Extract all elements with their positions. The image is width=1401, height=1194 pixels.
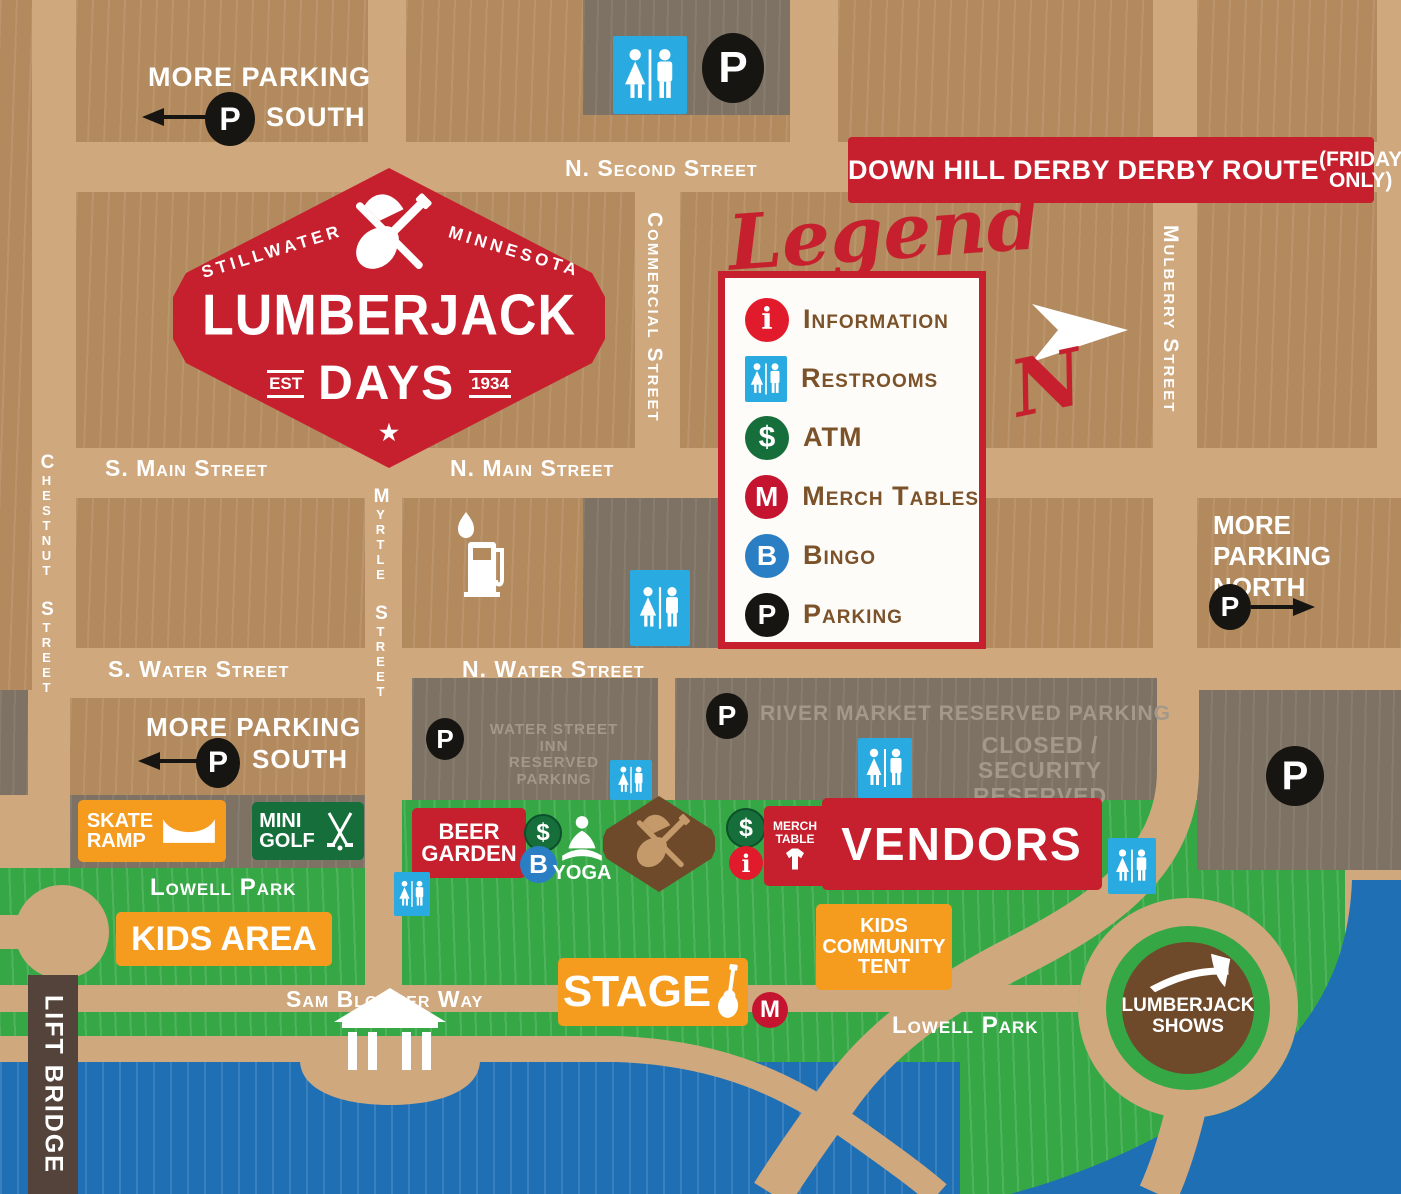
water-street-inn-line2: RESERVED PARKING — [476, 755, 632, 788]
legend-item-information: i Information — [745, 290, 979, 349]
lowell-park-label-left: Lowell Park — [150, 874, 297, 902]
badge-title: LUMBERJACK — [173, 283, 605, 349]
atm-glyph: $ — [536, 819, 549, 847]
more-parking-south-bottom-line1: MORE PARKING — [146, 712, 361, 743]
parking-glyph: P — [758, 599, 777, 631]
legend-label: Bingo — [803, 540, 876, 571]
legend-item-atm: $ ATM — [745, 408, 979, 467]
atm-glyph: $ — [759, 421, 776, 455]
more-parking-north-line2: PARKING — [1213, 541, 1331, 572]
street-label-commercial: Commercial Street — [642, 212, 666, 423]
atm-icon: $ — [726, 808, 766, 848]
restrooms-icon — [610, 760, 652, 800]
legend-label: Parking — [803, 599, 903, 630]
parking-icon: P — [426, 718, 464, 760]
bingo-glyph: B — [757, 540, 777, 572]
parking-icon: P — [702, 33, 764, 103]
tshirt-icon — [780, 846, 810, 872]
derby-route-title: DOWN HILL DERBY DERBY ROUTE — [848, 155, 1319, 186]
badge-subtitle: DAYS — [318, 356, 455, 411]
kids-tent-line3: TENT — [858, 957, 910, 977]
mini-golf-icon — [323, 811, 357, 851]
parking-glyph: P — [436, 724, 453, 755]
skate-ramp-line1: SKATE — [87, 811, 153, 831]
yoga-icon — [556, 814, 608, 866]
closed-security-line1: CLOSED / SECURITY — [925, 733, 1155, 784]
street-label-chestnut: Chestnut Street — [36, 452, 58, 695]
crossed-guitar-axe-icon — [331, 182, 447, 290]
merch-tables-icon: M — [752, 992, 788, 1028]
kids-tent-line2: COMMUNITY — [822, 937, 945, 957]
parking-glyph: P — [718, 700, 737, 732]
legend-item-restrooms: Restrooms — [745, 349, 979, 408]
kids-tent-line1: KIDS — [860, 916, 908, 936]
beer-garden-line2: GARDEN — [421, 843, 516, 865]
street-label-n-water: N. Water Street — [462, 656, 645, 683]
skate-ramp-patch: SKATE RAMP — [78, 800, 226, 862]
badge-est: EST — [267, 370, 304, 398]
restrooms-icon — [613, 36, 687, 114]
merch-glyph: M — [760, 996, 780, 1024]
vendors-patch: VENDORS — [822, 798, 1102, 890]
parking-glyph: P — [1282, 754, 1309, 799]
lumberjack-shows-line2: SHOWS — [1104, 1017, 1272, 1038]
legend-label: Merch Tables — [802, 481, 979, 512]
information-icon: i — [729, 846, 763, 880]
kids-area-label: KIDS AREA — [131, 922, 317, 957]
kids-community-tent-patch: KIDS COMMUNITY TENT — [816, 904, 952, 990]
restrooms-icon — [394, 872, 430, 916]
derby-note-line2: ONLY) — [1319, 170, 1401, 191]
street-label-n-main: N. Main Street — [450, 455, 614, 482]
more-parking-south-top-line2: SOUTH — [266, 102, 366, 133]
restrooms-icon — [1108, 838, 1156, 894]
parking-icon: P — [745, 593, 789, 637]
more-parking-south-bottom-line2: SOUTH — [252, 744, 348, 775]
stage-patch: STAGE — [558, 958, 748, 1026]
legend-label: ATM — [803, 422, 862, 453]
information-icon: i — [745, 298, 789, 342]
lift-bridge-label: LIFT BRIDGE — [39, 995, 68, 1174]
crossed-guitar-axe-icon — [620, 806, 700, 882]
legend-item-parking: P Parking — [745, 585, 979, 644]
merch-table-patch: MERCH TABLE — [764, 806, 826, 886]
parking-glyph: P — [718, 43, 747, 93]
parking-icon: P — [1266, 746, 1324, 806]
beer-garden-line1: BEER — [421, 821, 516, 843]
bingo-glyph: B — [529, 849, 548, 880]
information-glyph: i — [761, 302, 772, 337]
legend-box: i Information Restrooms $ ATM M Merch Ta… — [718, 271, 986, 649]
merch-table-line2: TABLE — [775, 833, 814, 846]
roundabout — [15, 885, 109, 979]
stage-label: STAGE — [563, 970, 711, 1015]
lumberjack-shows-label: LUMBERJACK SHOWS — [1104, 996, 1272, 1038]
vendors-label: VENDORS — [841, 821, 1082, 868]
street-label-s-water: S. Water Street — [108, 656, 289, 683]
guitar-icon — [713, 962, 747, 1021]
restrooms-icon — [745, 356, 787, 402]
information-glyph: i — [741, 849, 750, 878]
legend-item-bingo: B Bingo — [745, 526, 979, 585]
mini-golf-line1: MINI — [259, 811, 315, 831]
restrooms-icon — [858, 738, 912, 798]
merch-glyph: M — [755, 481, 778, 513]
axe-icon — [1146, 952, 1234, 994]
parking-glyph: P — [208, 746, 228, 780]
mini-golf-patch: MINI GOLF — [252, 802, 364, 860]
river-market-label: RIVER MARKET RESERVED PARKING — [760, 702, 1171, 725]
legend-item-merch: M Merch Tables — [745, 467, 979, 526]
street-label-mulberry: Mulberry Street — [1158, 225, 1182, 413]
water-street-inn-label: WATER STREET INN RESERVED PARKING — [476, 722, 632, 788]
legend-label: Restrooms — [801, 363, 938, 394]
festival-map: LIFT BRIDGE MORE PARKING P SOUTH P DOWN … — [0, 0, 1401, 1194]
skate-ramp-line2: RAMP — [87, 831, 153, 851]
atm-icon: $ — [745, 416, 789, 460]
skate-ramp-icon — [161, 816, 217, 846]
lumberjack-shows-line1: LUMBERJACK — [1104, 996, 1272, 1017]
street-label-myrtle: Myrtle Street — [370, 486, 392, 699]
yoga-label: YOGA — [552, 862, 612, 885]
more-parking-south-top-line1: MORE PARKING — [148, 62, 371, 93]
lift-bridge: LIFT BRIDGE — [28, 975, 78, 1194]
arrow-right-icon — [1251, 596, 1317, 618]
bandshell-icon — [328, 986, 452, 1078]
lowell-park-label-right: Lowell Park — [892, 1012, 1039, 1040]
derby-note-line1: (FRIDAY — [1319, 149, 1401, 170]
atm-glyph: $ — [739, 814, 753, 843]
more-parking-north-line1: MORE — [1213, 510, 1331, 541]
parking-glyph: P — [219, 101, 240, 138]
water-street-inn-line1: WATER STREET INN — [476, 722, 632, 755]
kids-area-patch: KIDS AREA — [116, 912, 332, 966]
street-label-n-second: N. Second Street — [565, 155, 758, 182]
bingo-icon: B — [745, 534, 789, 578]
merch-tables-icon: M — [745, 475, 788, 519]
parking-icon: P — [1209, 584, 1251, 630]
parking-icon: P — [205, 92, 255, 146]
street-label-s-main: S. Main Street — [105, 455, 268, 482]
parking-icon: P — [196, 738, 240, 788]
mini-golf-line2: GOLF — [259, 831, 315, 851]
road-stub — [0, 915, 25, 949]
parking-icon: P — [706, 693, 748, 739]
beer-garden-patch: BEER GARDEN — [412, 808, 526, 878]
parking-glyph: P — [1221, 591, 1240, 623]
legend-label: Information — [803, 304, 949, 335]
restrooms-icon — [630, 570, 690, 646]
badge-year: 1934 — [469, 370, 511, 398]
gas-station-icon — [452, 510, 508, 598]
